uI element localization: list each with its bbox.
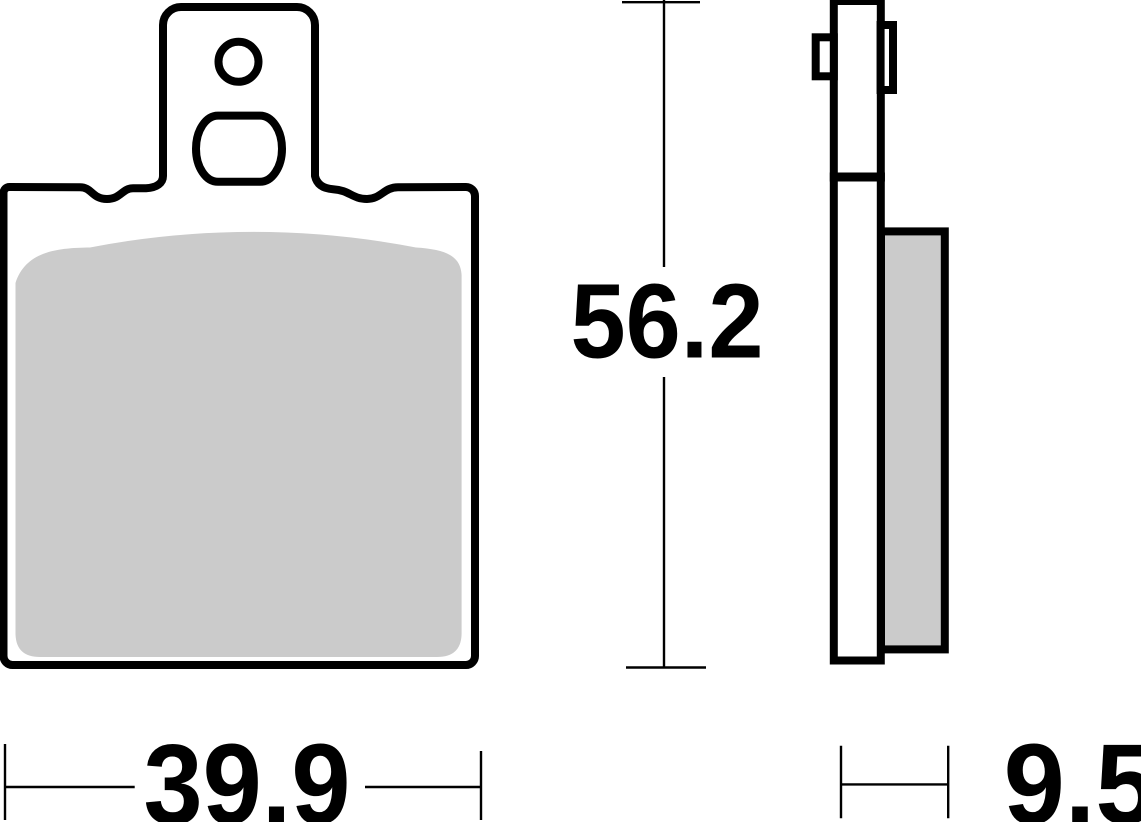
- svg-text:56.2: 56.2: [571, 263, 764, 381]
- svg-text:39.9: 39.9: [144, 722, 351, 822]
- svg-text:9.5: 9.5: [1004, 722, 1141, 822]
